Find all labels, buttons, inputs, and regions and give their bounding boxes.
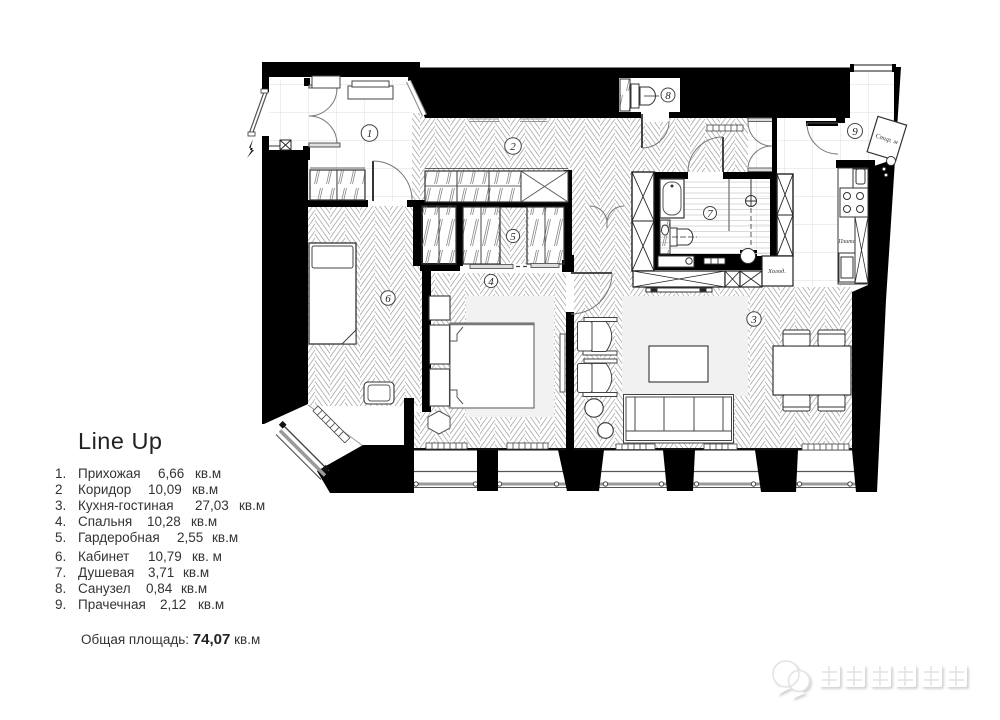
- svg-text:5: 5: [510, 231, 516, 243]
- svg-text:Плита: Плита: [837, 239, 855, 245]
- svg-text:2: 2: [510, 141, 516, 153]
- svg-text:8: 8: [665, 90, 671, 102]
- svg-text:3: 3: [750, 314, 757, 326]
- svg-text:Холод.: Холод.: [767, 268, 786, 275]
- svg-text:6: 6: [385, 293, 391, 305]
- svg-text:4: 4: [488, 276, 494, 288]
- svg-text:1: 1: [367, 128, 373, 140]
- svg-text:7: 7: [707, 208, 713, 220]
- svg-text:9: 9: [852, 126, 858, 138]
